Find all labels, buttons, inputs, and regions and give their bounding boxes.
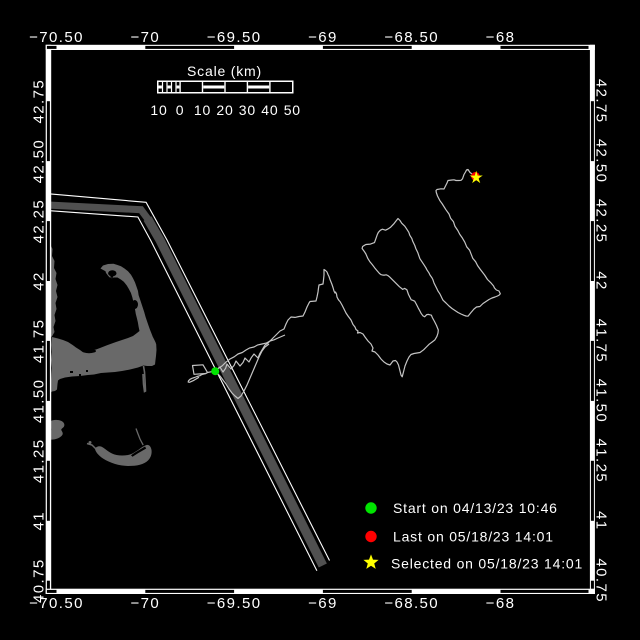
svg-text:Scale (km): Scale (km) — [187, 63, 262, 79]
svg-text:41: 41 — [31, 511, 48, 531]
svg-text:42.75: 42.75 — [31, 79, 48, 124]
svg-text:−70: −70 — [130, 595, 160, 612]
svg-text:Selected on 05/18/23 14:01: Selected on 05/18/23 14:01 — [391, 556, 583, 572]
svg-text:−69.50: −69.50 — [207, 29, 262, 46]
svg-text:40.75: 40.75 — [593, 558, 610, 603]
svg-text:42.75: 42.75 — [593, 79, 610, 124]
svg-text:50: 50 — [284, 102, 301, 118]
svg-text:10: 10 — [194, 102, 211, 118]
svg-text:20: 20 — [216, 102, 233, 118]
svg-text:0: 0 — [176, 102, 185, 118]
svg-text:41.25: 41.25 — [31, 439, 48, 484]
svg-text:40: 40 — [261, 102, 278, 118]
svg-text:41.75: 41.75 — [593, 319, 610, 364]
svg-text:−69: −69 — [308, 29, 338, 46]
svg-text:Start on 04/13/23 10:46: Start on 04/13/23 10:46 — [393, 500, 558, 516]
svg-text:42: 42 — [593, 271, 610, 291]
svg-text:42.25: 42.25 — [31, 199, 48, 244]
svg-text:−68: −68 — [486, 29, 516, 46]
svg-text:−69: −69 — [308, 595, 338, 612]
svg-text:42.25: 42.25 — [593, 199, 610, 244]
svg-text:41.50: 41.50 — [593, 379, 610, 424]
svg-text:42: 42 — [31, 271, 48, 291]
svg-text:Last on 05/18/23 14:01: Last on 05/18/23 14:01 — [393, 529, 554, 545]
svg-text:10: 10 — [150, 102, 167, 118]
svg-text:42.50: 42.50 — [31, 139, 48, 184]
svg-text:42.50: 42.50 — [593, 139, 610, 184]
svg-text:41.25: 41.25 — [593, 439, 610, 484]
svg-text:30: 30 — [239, 102, 256, 118]
svg-text:−70: −70 — [130, 29, 160, 46]
svg-text:40.75: 40.75 — [31, 558, 48, 603]
svg-text:41: 41 — [593, 511, 610, 531]
svg-text:−69.50: −69.50 — [207, 595, 262, 612]
svg-text:−68.50: −68.50 — [384, 29, 439, 46]
svg-text:−68: −68 — [486, 595, 516, 612]
svg-text:−68.50: −68.50 — [384, 595, 439, 612]
svg-text:41.75: 41.75 — [31, 319, 48, 364]
svg-text:−70.50: −70.50 — [29, 29, 84, 46]
svg-text:41.50: 41.50 — [31, 379, 48, 424]
